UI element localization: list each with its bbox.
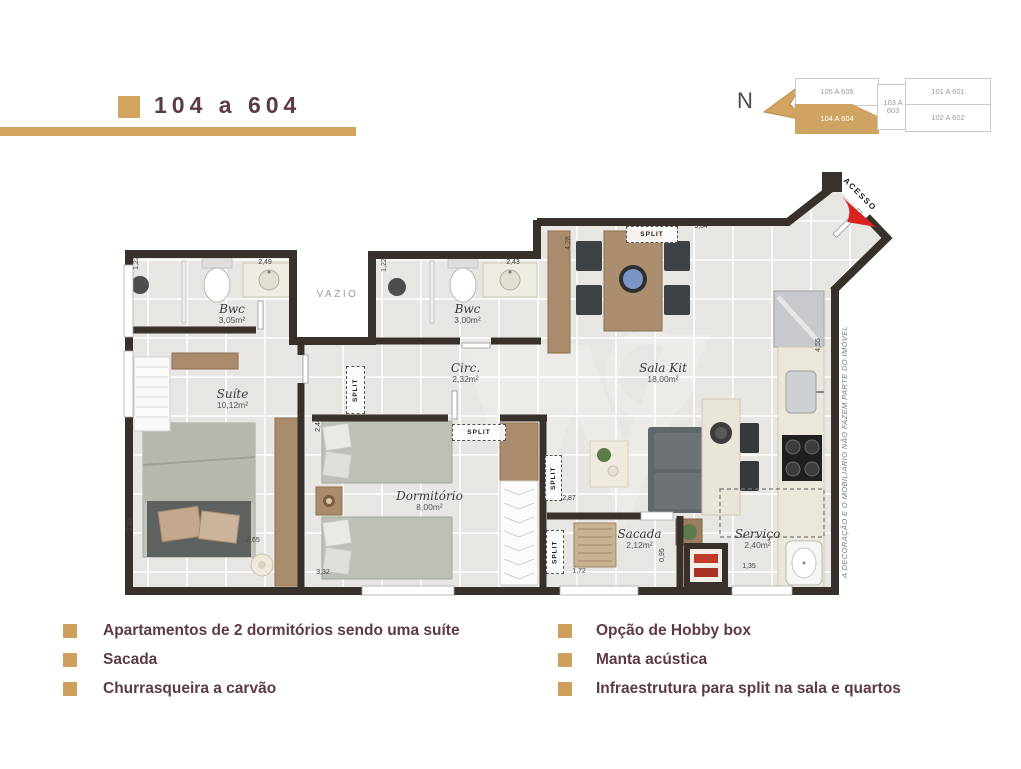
key-plan: 105 A 605 104 A 604 103 A 603 101 A 601 … <box>795 76 991 134</box>
split-label-suite: SPLIT <box>346 366 365 414</box>
suite-wood-panel <box>275 418 301 586</box>
feature-item: Apartamentos de 2 dormitórios sendo uma … <box>103 622 460 640</box>
feature-bullet <box>63 682 77 696</box>
furniture-disclaimer: A DECORAÇÃO E O MOBILIÁRIO NÃO FAZEM PAR… <box>840 296 849 578</box>
feature-item: Opção de Hobby box <box>596 622 751 640</box>
suite-dresser <box>134 357 170 431</box>
split-label-sala: SPLIT <box>626 226 678 243</box>
sala-wood-panel <box>548 231 570 353</box>
floor-plan-page: 104 a 604 N 105 A 605 104 A 604 103 A 60… <box>0 0 1021 769</box>
coffee-table <box>590 441 628 487</box>
split-label-sacada: SPLIT <box>546 530 564 574</box>
feature-item: Manta acústica <box>596 651 707 669</box>
feature-bullet <box>63 653 77 667</box>
key-plan-unit-105: 105 A 605 <box>795 78 879 106</box>
split-label-dormitorio: SPLIT <box>452 424 506 441</box>
feature-bullet <box>558 653 572 667</box>
dorm-twin-beds <box>316 421 452 579</box>
suite-lamp <box>258 561 266 569</box>
feature-item: Churrasqueira a carvão <box>103 680 276 698</box>
bathroom1-fixtures <box>131 258 295 323</box>
key-plan-unit-104-highlighted: 104 A 604 <box>795 104 879 134</box>
charcoal-grill <box>684 543 728 587</box>
title-underline-bar <box>0 127 356 136</box>
key-plan-unit-102: 102 A 602 <box>905 104 991 132</box>
bathroom2-fixtures <box>388 258 537 323</box>
page-title: 104 a 604 <box>154 92 301 119</box>
kitchen-peninsula <box>702 399 759 515</box>
key-plan-unit-101: 101 A 601 <box>905 78 991 106</box>
feature-bullet <box>63 624 77 638</box>
feature-bullet <box>558 624 572 638</box>
suite-bed <box>143 423 255 557</box>
feature-item: Sacada <box>103 651 157 669</box>
dorm-wardrobe <box>500 423 538 585</box>
compass-north-label: N <box>737 88 753 114</box>
void-label: VAZIO <box>305 289 370 300</box>
feature-bullet <box>558 682 572 696</box>
floor-plan-drawing <box>110 165 910 610</box>
title-accent-square <box>118 96 140 118</box>
suite-desk <box>172 353 238 369</box>
feature-item: Infraestrutura para split na sala e quar… <box>596 680 901 698</box>
dining-set <box>576 231 690 331</box>
entry-pillar <box>822 172 842 192</box>
split-label-wardrobe-wall: SPLIT <box>545 455 562 501</box>
